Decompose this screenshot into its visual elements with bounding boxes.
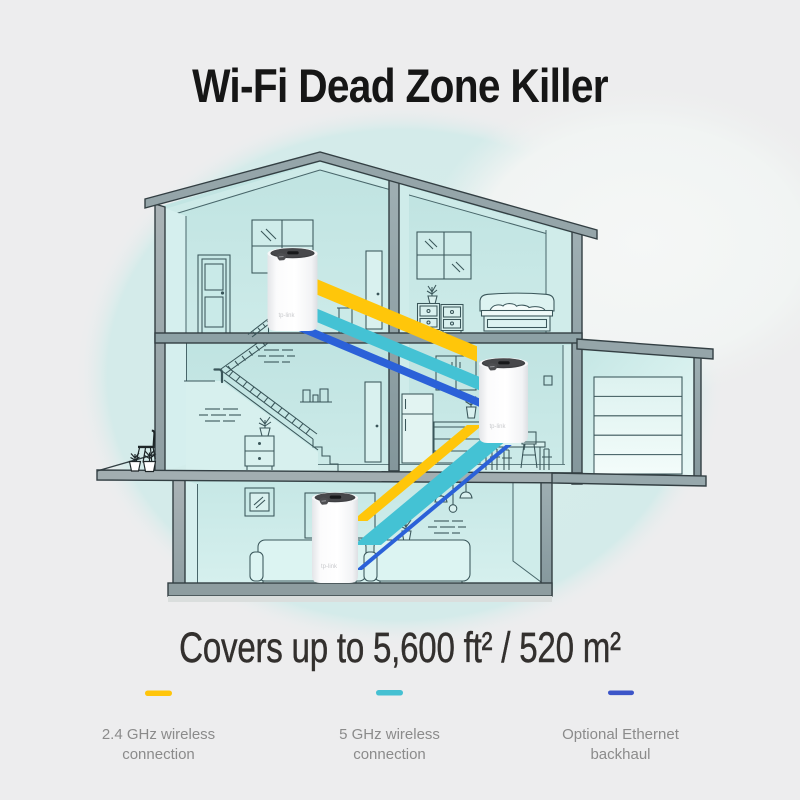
svg-text:2.4 GHz wireless: 2.4 GHz wireless xyxy=(102,726,215,743)
svg-text:tp-link: tp-link xyxy=(321,564,338,570)
svg-text:5 GHz wireless: 5 GHz wireless xyxy=(339,726,440,743)
svg-text:tp-link: tp-link xyxy=(489,424,506,430)
svg-text:Wi-Fi Dead Zone Killer: Wi-Fi Dead Zone Killer xyxy=(192,60,608,112)
svg-text:connection: connection xyxy=(353,746,426,763)
svg-text:connection: connection xyxy=(122,746,195,763)
svg-text:tp-link: tp-link xyxy=(278,313,295,319)
svg-text:backhaul: backhaul xyxy=(590,746,650,763)
svg-text:Covers up to 5,600 ft² / 520 m: Covers up to 5,600 ft² / 520 m² xyxy=(179,624,621,672)
svg-text:Optional Ethernet: Optional Ethernet xyxy=(562,726,680,743)
